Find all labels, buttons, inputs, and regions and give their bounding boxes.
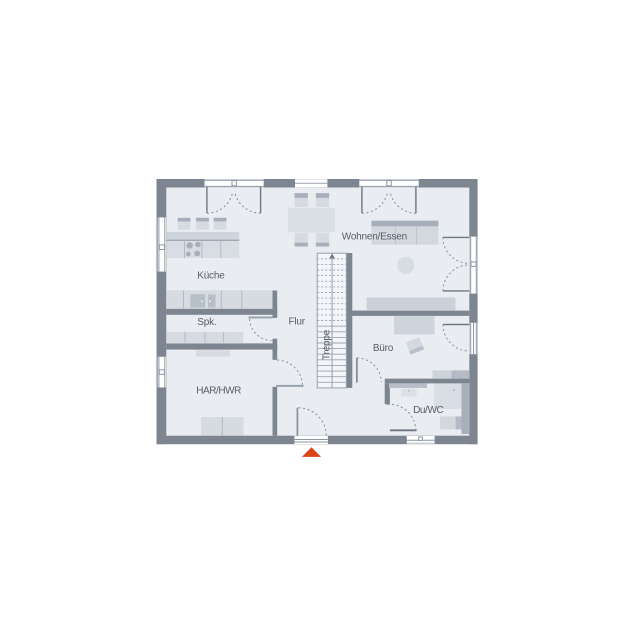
svg-text:Wohnen/Essen: Wohnen/Essen [342, 231, 407, 242]
svg-text:Flur: Flur [288, 317, 305, 328]
svg-text:Du/WC: Du/WC [413, 405, 443, 416]
svg-text:Spk.: Spk. [197, 317, 216, 328]
svg-text:Küche: Küche [197, 270, 225, 281]
svg-text:Büro: Büro [373, 343, 394, 354]
svg-text:Treppe: Treppe [322, 329, 333, 360]
svg-text:HAR/HWR: HAR/HWR [196, 385, 241, 396]
